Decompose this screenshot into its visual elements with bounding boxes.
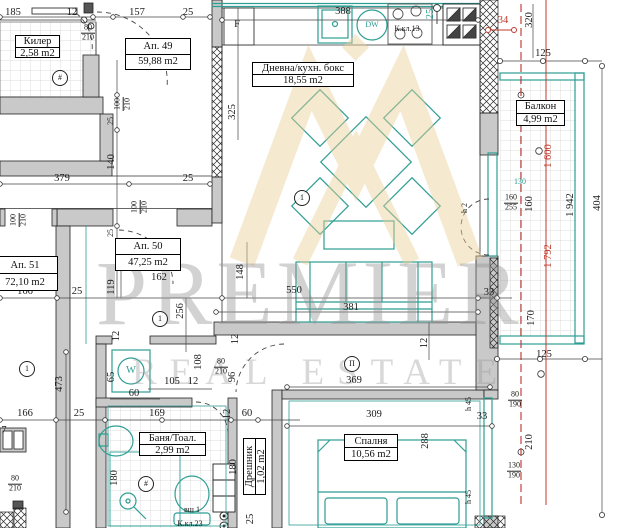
room-label: Ап. 5047,25 m2 bbox=[115, 238, 181, 271]
dimension-label: F bbox=[234, 20, 240, 31]
dimension-label: 34 bbox=[498, 16, 509, 27]
dimension-label: 180 bbox=[229, 459, 240, 475]
dimension-label: 160 bbox=[525, 196, 536, 212]
dimension-label: h 45 bbox=[465, 397, 473, 411]
dimension-label: вш 1 bbox=[184, 506, 200, 514]
dimension-label: 100210 bbox=[114, 97, 133, 111]
dimension-label: 169 bbox=[149, 409, 165, 420]
dimension-label: 12 bbox=[112, 331, 123, 342]
dimension-label: 25 bbox=[74, 409, 85, 420]
dimension-label: 1 942 bbox=[566, 193, 577, 217]
dimension-label: 140 bbox=[107, 154, 118, 170]
room-label: Дрешник1,02 m2 bbox=[243, 438, 266, 495]
dimension-label: 105 bbox=[164, 377, 180, 388]
dimension-label: 119 bbox=[107, 279, 118, 294]
dimension-label: 157 bbox=[129, 8, 145, 19]
dimension-label: 100210 bbox=[131, 200, 150, 214]
dimension-label: 166 bbox=[17, 409, 33, 420]
room-label: Килер2,58 m2 bbox=[15, 35, 60, 58]
dimension-label: W bbox=[126, 366, 136, 377]
dimension-label: 170 bbox=[527, 310, 538, 326]
room-label: Дневна/кухн. бокс18,55 m2 bbox=[252, 62, 354, 87]
dimension-label: 80210 bbox=[81, 24, 95, 43]
dimension-label: h 2 bbox=[461, 203, 469, 213]
dimension-label: 185 bbox=[5, 8, 21, 19]
dimension-label: 100210 bbox=[10, 213, 29, 227]
dimension-label: 25 bbox=[107, 117, 115, 125]
dimension-label: К.кл.23 bbox=[177, 520, 202, 528]
dimension-label: 309 bbox=[366, 410, 382, 421]
dimension-label: К.кл.13 bbox=[394, 25, 419, 33]
dimension-label: 325 bbox=[228, 104, 239, 120]
plan-symbol: 1 bbox=[294, 190, 310, 206]
floor-plan: PREMIER REAL ESTATE 185121572538825К.кл.… bbox=[0, 0, 637, 528]
dimension-label: 125 bbox=[535, 49, 551, 60]
dimension-label: 65 bbox=[107, 372, 118, 383]
dimension-label: 12 bbox=[188, 377, 199, 388]
dimension-label: 288 bbox=[421, 433, 432, 449]
dimension-label: 96 bbox=[228, 372, 239, 383]
dimension-label: 80190 bbox=[508, 391, 522, 410]
dimension-label: 130 bbox=[514, 178, 526, 186]
dimension-label: 25 bbox=[246, 514, 257, 525]
dimension-label: 1 600 bbox=[544, 144, 555, 168]
dimension-label: 12 bbox=[67, 8, 78, 19]
dimension-label: 404 bbox=[593, 195, 604, 211]
dimension-label: 180 bbox=[110, 470, 121, 486]
plan-symbol: П bbox=[344, 356, 360, 372]
plan-symbol: # bbox=[138, 476, 154, 492]
room-label: Баня/Тоал.2,99 m2 bbox=[139, 432, 206, 456]
plan-symbol: 1 bbox=[19, 361, 35, 377]
dimension-label: 210 bbox=[525, 434, 536, 450]
dimension-label: 60 bbox=[129, 389, 140, 400]
dimension-label: 80210 bbox=[8, 475, 22, 494]
dimension-label: 25 bbox=[426, 9, 437, 20]
dimension-label: 162 bbox=[151, 273, 167, 284]
room-label: Ап. 5172,10 m2 bbox=[0, 256, 58, 291]
dimension-label: 550 bbox=[286, 286, 302, 297]
room-label: Балкон4,99 m2 bbox=[516, 100, 565, 126]
dimension-label: 108 bbox=[194, 354, 205, 370]
dimension-label: 256 bbox=[176, 303, 187, 319]
plan-symbol: 1 bbox=[152, 311, 168, 327]
dimension-label: 320 bbox=[525, 12, 536, 28]
dimension-label: 148 bbox=[236, 264, 247, 280]
dimension-label: 125 bbox=[536, 350, 552, 361]
dimension-label: 379 bbox=[54, 174, 70, 185]
dimension-label: 369 bbox=[346, 376, 362, 387]
dimension-label: 130190 bbox=[507, 462, 521, 481]
dimension-label: 1 792 bbox=[544, 244, 555, 268]
dimension-label: DW bbox=[365, 21, 378, 29]
dimension-label: 12 bbox=[231, 334, 242, 345]
dimension-label: 60 bbox=[242, 409, 253, 420]
dimension-label: 473 bbox=[55, 376, 66, 392]
dimension-label: 12 bbox=[420, 338, 431, 349]
dimension-label: 33 bbox=[477, 412, 488, 423]
dimension-label: 33 bbox=[484, 288, 495, 299]
dimension-label: 388 bbox=[335, 7, 351, 18]
room-label: Ап. 4959,88 m2 bbox=[125, 38, 191, 70]
plan-symbol: # bbox=[52, 70, 68, 86]
dimension-label: 7 bbox=[1, 426, 6, 437]
dimension-label: 381 bbox=[343, 303, 359, 314]
dimension-label: 25 bbox=[72, 287, 83, 298]
dimension-label: 25 bbox=[183, 174, 194, 185]
dimension-label: 160255 bbox=[504, 194, 518, 213]
dimension-label: 12 bbox=[223, 409, 234, 420]
dimension-label: 25 bbox=[183, 8, 194, 19]
room-label: Спалня10,56 m2 bbox=[344, 434, 398, 461]
dimension-label: 25 bbox=[107, 229, 115, 237]
dimension-label: h 45 bbox=[465, 490, 473, 504]
label-layer: 185121572538825К.кл.13343201258021010021… bbox=[0, 0, 637, 528]
